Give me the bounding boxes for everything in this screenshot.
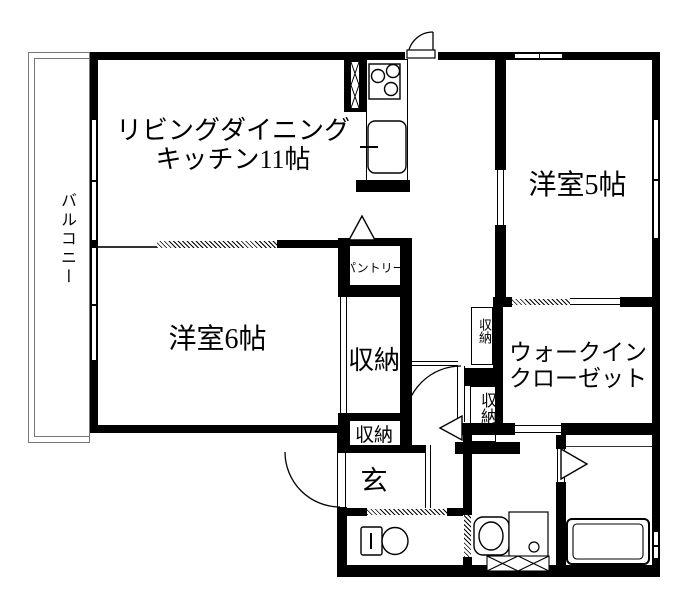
storage-main-label: 収納 (346, 340, 402, 377)
wall-ldk-bedroom6 (277, 240, 345, 248)
bath-inner-line (566, 446, 652, 447)
wall-right-1 (652, 52, 660, 120)
wall-pantry-bottom (338, 285, 412, 297)
wic-label-line2: クローゼット (500, 366, 656, 392)
door-arc-entrance (285, 452, 340, 507)
wall-bedroom5-left-1 (495, 60, 506, 170)
wall-wic-top-1 (493, 297, 512, 307)
toilet-icon (361, 527, 408, 555)
wall-top-2 (438, 52, 515, 60)
ldk-label-line2: キッチン11帖 (105, 145, 361, 174)
bedroom5-label: 洋室5帖 (500, 163, 655, 203)
kitchen-counter-base (356, 180, 410, 192)
opening-washroom-wic (515, 425, 561, 433)
wall-toilet-wash-1 (463, 435, 472, 515)
pantry-label: パントリー (344, 259, 404, 276)
wall-wash-bath-1 (556, 435, 566, 449)
window-top (515, 52, 562, 60)
wall-left-1 (90, 52, 98, 120)
hatch-ldk-bedroom6 (157, 241, 277, 248)
partition-line-ldk-bedroom6 (98, 246, 158, 248)
kitchen-shaft-slot (351, 62, 359, 108)
balcony-label: バルコニー (54, 192, 78, 287)
hall-boundary-line (412, 361, 458, 366)
wall-left-2 (90, 240, 98, 248)
hall-door-leaf (457, 366, 465, 422)
wall-toilet-top-2 (447, 508, 463, 516)
floor-plan: バルコニー リビングダイニング キッチン11帖 洋室5帖 洋室6帖 パントリー … (0, 0, 692, 600)
wall-wash-bath-2 (556, 482, 566, 577)
entrance-label: 玄 (346, 459, 402, 498)
wall-bedroom6-bottom (90, 425, 345, 433)
washbasin-icon (474, 512, 548, 557)
fold-door-pantry (349, 216, 375, 240)
window-right-bath (652, 532, 660, 558)
wall-closet-sep (465, 368, 496, 386)
storage-hall-label: 収納 (474, 392, 498, 424)
hatch-wic-top (512, 299, 570, 305)
wall-bottom (337, 565, 660, 577)
bedroom6-label: 洋室6帖 (140, 317, 295, 357)
wic-label-line1: ウォークイン (500, 340, 656, 366)
wic-label: ウォークイン クローゼット (500, 340, 656, 392)
wall-left-3 (90, 360, 98, 433)
entrance-step-line (425, 445, 431, 508)
hatch-toilet-door (367, 509, 447, 515)
entrance-door-leaf (337, 452, 346, 507)
bathtub-icon (567, 519, 649, 564)
wall-toilet-top-1 (347, 508, 367, 516)
wall-bedroom5-left-2 (495, 225, 506, 297)
window-left-ldk (90, 120, 98, 240)
window-left-bedroom6 (90, 248, 98, 360)
ldk-label-line1: リビングダイニング (105, 116, 361, 145)
bath-door-leaf (557, 449, 565, 482)
opening-wic-top (570, 298, 620, 305)
storage-top-label: 収納 (475, 318, 494, 344)
hatch-toilet-wash (464, 515, 471, 557)
ldk-label: リビングダイニング キッチン11帖 (105, 116, 361, 174)
door-arc-kitchen (407, 32, 435, 58)
wall-washzone-top-2 (561, 423, 660, 435)
wall-top-3 (562, 52, 660, 60)
wall-washzone-top-1 (455, 423, 515, 435)
wall-wic-top-2 (620, 297, 660, 307)
storage-lower-label: 収納 (346, 420, 402, 447)
wall-toilet-wash-2 (463, 557, 472, 577)
door-arc-hall (405, 366, 461, 422)
kitchen-counter (366, 59, 408, 183)
